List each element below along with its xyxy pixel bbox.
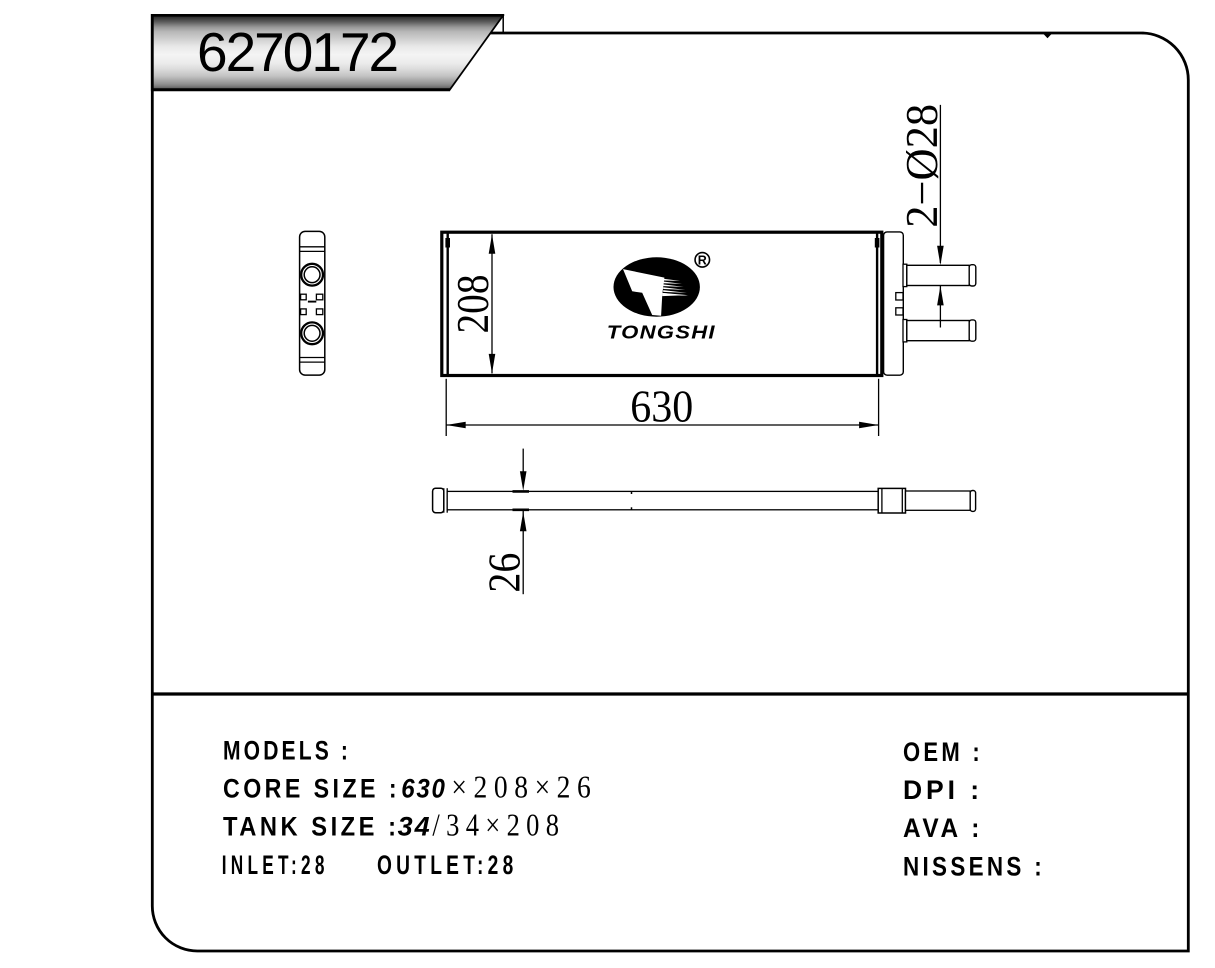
svg-text:630: 630 [401,773,447,803]
svg-text:/34×208: /34×208 [432,808,565,843]
svg-text:×208×26: ×208×26 [451,769,597,804]
svg-text:R: R [698,253,707,267]
svg-text:DPI :: DPI : [903,775,983,805]
svg-text:AVA :: AVA : [903,813,983,843]
svg-text:OEM :: OEM : [903,737,983,767]
svg-text:INLET:28: INLET:28 [222,850,329,880]
svg-text:MODELS :: MODELS : [223,735,351,765]
svg-text:6270172: 6270172 [197,21,397,83]
svg-text:TANK SIZE :: TANK SIZE : [223,812,400,842]
svg-text:208: 208 [448,275,498,334]
svg-text:630: 630 [630,382,693,432]
svg-text:26: 26 [480,553,530,593]
svg-text:2−Ø28: 2−Ø28 [897,104,947,228]
svg-text:OUTLET:28: OUTLET:28 [377,850,518,880]
svg-text:NISSENS :: NISSENS : [903,852,1045,882]
svg-text:34: 34 [398,812,432,842]
svg-text:TONGSHI: TONGSHI [607,323,716,343]
svg-text:CORE SIZE :: CORE SIZE : [223,773,400,803]
